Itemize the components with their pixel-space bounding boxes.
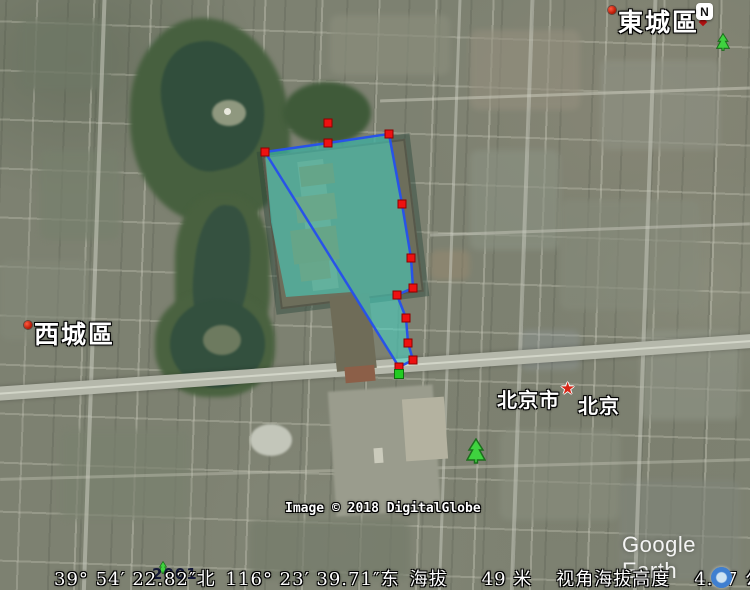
elevation-value: 49 米 [482,565,533,590]
vertex-marker[interactable] [409,356,417,364]
vertex-marker[interactable] [409,284,417,292]
streaming-indicator-icon [711,567,732,588]
latitude-value: 39° 54′ 22.82″ [54,569,197,590]
start-vertex-marker[interactable] [395,370,404,379]
vertex-marker[interactable] [324,119,332,127]
vertex-marker[interactable] [404,339,412,347]
eye-altitude-label: 视角海拔高度 [556,565,670,590]
placemark-dot [608,6,616,14]
tree-icon [716,32,730,52]
vertex-marker[interactable] [393,291,401,299]
google-earth-viewport[interactable]: N 東城區 西城區 北京市 ★ 北京 2001 Image © 2018 Dig… [0,0,750,590]
tree-icon [466,438,486,464]
vertex-marker[interactable] [402,314,410,322]
vertex-marker[interactable] [324,139,332,147]
label-beijing-capital: 北京 [578,390,620,419]
longitude-hemisphere: 东 [381,565,400,590]
label-dongcheng-district: 東城區 [618,3,699,39]
imagery-credit: Image © 2018 DigitalGlobe [285,501,481,516]
vertex-marker[interactable] [261,148,269,156]
placemark-dot [24,321,32,329]
capital-star-icon: ★ [560,379,575,399]
status-bar: 39° 54′ 22.82″ 北 116° 23′ 39.71″ 东 海拔 49… [54,565,750,590]
label-xicheng-district: 西城區 [34,315,115,351]
longitude-value: 116° 23′ 39.71″ [226,569,381,590]
label-beijing-city: 北京市 [497,384,560,413]
vertex-marker[interactable] [398,200,406,208]
vertex-marker[interactable] [385,130,393,138]
measured-region-fill [265,134,413,367]
elevation-label: 海拔 [410,565,448,590]
vertex-marker[interactable] [407,254,415,262]
latitude-hemisphere: 北 [197,565,216,590]
